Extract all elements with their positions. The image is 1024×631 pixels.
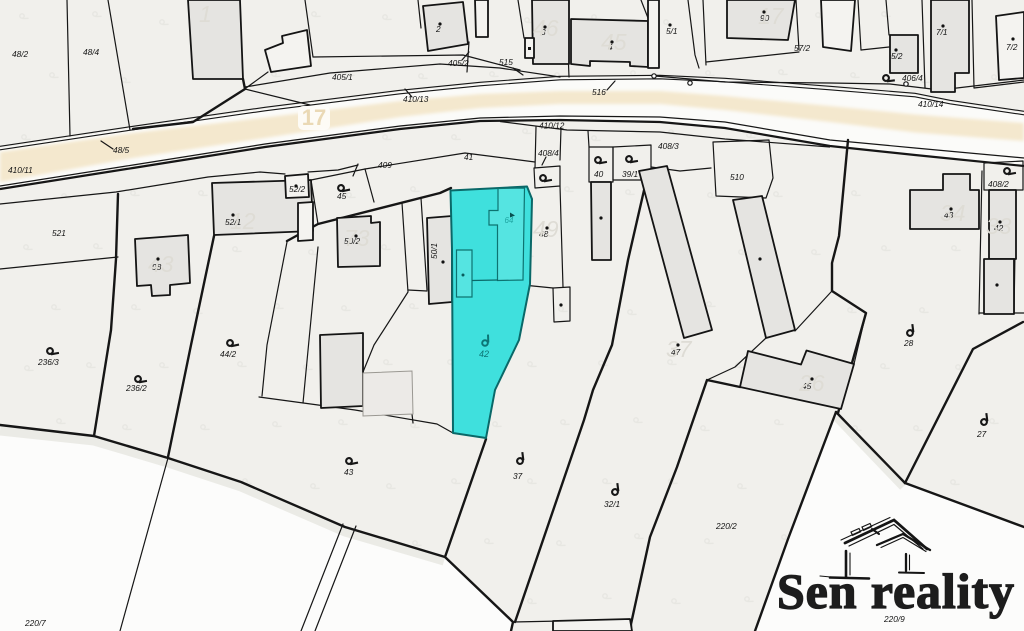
svg-text:410/11: 410/11 <box>8 165 33 175</box>
svg-text:220/7: 220/7 <box>24 618 46 628</box>
svg-text:Sen reality: Sen reality <box>777 563 1014 619</box>
svg-text:48/2: 48/2 <box>12 49 29 59</box>
svg-text:408/4: 408/4 <box>538 148 559 158</box>
svg-text:7/1: 7/1 <box>936 27 948 37</box>
svg-text:405/1: 405/1 <box>332 72 353 82</box>
svg-text:236/3: 236/3 <box>37 357 59 367</box>
svg-text:516: 516 <box>592 87 606 97</box>
svg-text:39/1: 39/1 <box>622 169 638 179</box>
svg-text:33: 33 <box>986 213 1012 239</box>
svg-text:40: 40 <box>594 169 604 179</box>
svg-text:37: 37 <box>513 471 523 481</box>
svg-text:50/1: 50/1 <box>429 243 439 259</box>
svg-text:5/2: 5/2 <box>891 51 903 61</box>
svg-text:42: 42 <box>479 349 489 359</box>
svg-text:32/1: 32/1 <box>604 499 620 509</box>
svg-text:410/14: 410/14 <box>918 99 944 109</box>
svg-text:236/2: 236/2 <box>125 383 147 393</box>
svg-text:41: 41 <box>464 152 473 162</box>
svg-text:28: 28 <box>903 338 914 348</box>
svg-text:410/12: 410/12 <box>539 121 565 131</box>
svg-text:5/1: 5/1 <box>666 26 678 36</box>
svg-text:17: 17 <box>302 105 326 130</box>
svg-text:17: 17 <box>758 3 785 29</box>
svg-text:45: 45 <box>601 29 627 55</box>
svg-text:409: 409 <box>378 160 392 170</box>
svg-text:45: 45 <box>337 191 347 201</box>
svg-text:7/2: 7/2 <box>1006 42 1018 52</box>
svg-text:43: 43 <box>148 251 174 277</box>
svg-text:510: 510 <box>730 172 744 182</box>
svg-text:521: 521 <box>52 228 66 238</box>
svg-text:57/2: 57/2 <box>794 43 811 53</box>
svg-text:48/5: 48/5 <box>113 145 130 155</box>
svg-text:515: 515 <box>499 57 513 67</box>
svg-text:1: 1 <box>199 1 212 27</box>
svg-text:64: 64 <box>505 216 514 225</box>
svg-text:405/2: 405/2 <box>448 58 469 68</box>
svg-text:26: 26 <box>798 370 825 396</box>
svg-text:406/4: 406/4 <box>902 73 923 83</box>
svg-text:27: 27 <box>976 429 987 439</box>
svg-text:12: 12 <box>230 208 256 234</box>
svg-text:37: 37 <box>666 336 693 362</box>
svg-text:410/13: 410/13 <box>403 94 429 104</box>
svg-text:44/2: 44/2 <box>220 349 237 359</box>
svg-text:408/3: 408/3 <box>658 141 679 151</box>
svg-text:48/4: 48/4 <box>83 47 100 57</box>
svg-text:220/2: 220/2 <box>715 521 737 531</box>
svg-text:408/2: 408/2 <box>988 179 1009 189</box>
svg-text:34: 34 <box>940 200 966 226</box>
svg-text:43: 43 <box>344 467 354 477</box>
svg-text:73: 73 <box>344 225 370 251</box>
